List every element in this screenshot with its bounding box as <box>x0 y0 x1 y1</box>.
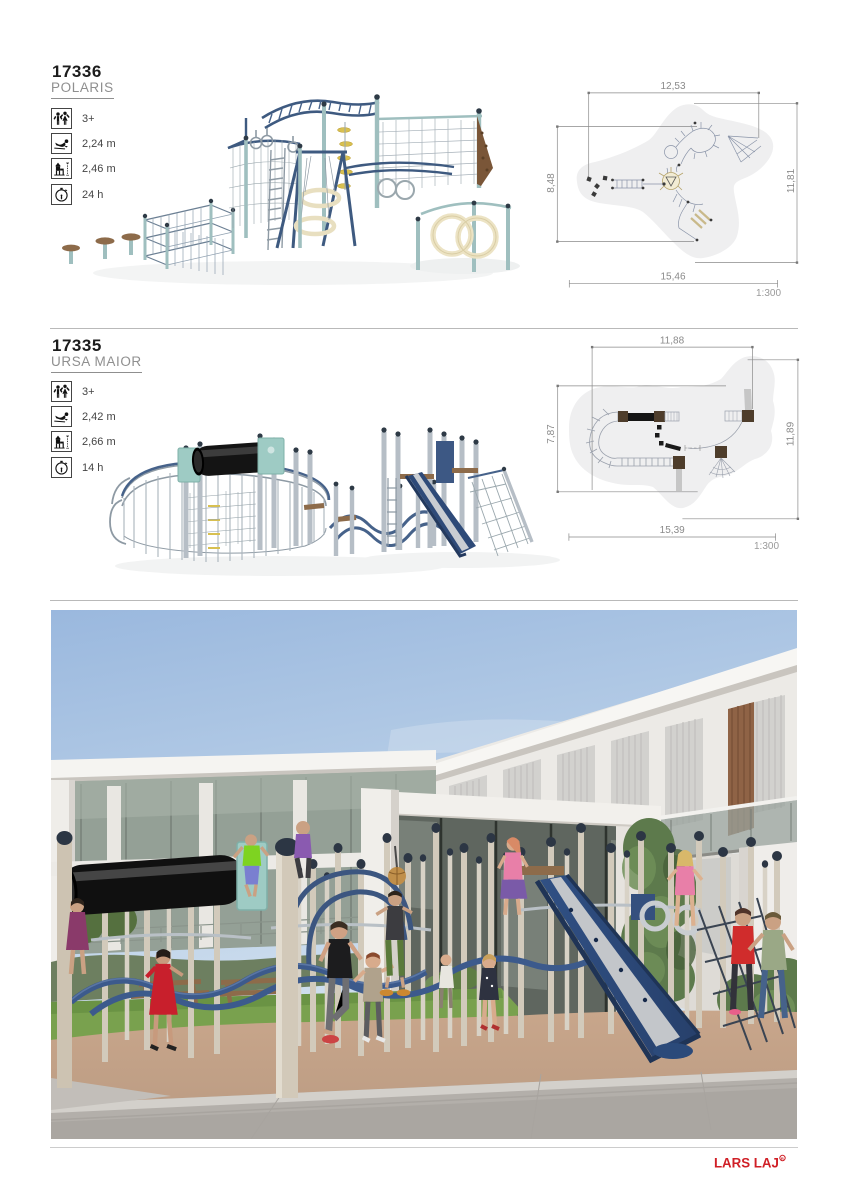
svg-text:1:300: 1:300 <box>756 288 781 299</box>
svg-text:11,89: 11,89 <box>786 421 797 446</box>
svg-text:15,46: 15,46 <box>660 272 685 283</box>
svg-text:8,48: 8,48 <box>546 173 557 193</box>
svg-text:11,81: 11,81 <box>786 168 797 193</box>
svg-text:LARS LAJ: LARS LAJ <box>714 1155 779 1170</box>
svg-text:11,88: 11,88 <box>660 336 685 347</box>
svg-text:R: R <box>781 1156 784 1161</box>
svg-text:15,39: 15,39 <box>660 525 685 536</box>
svg-text:12,53: 12,53 <box>660 81 685 92</box>
svg-text:7,87: 7,87 <box>546 424 557 444</box>
svg-text:1:300: 1:300 <box>754 541 779 552</box>
